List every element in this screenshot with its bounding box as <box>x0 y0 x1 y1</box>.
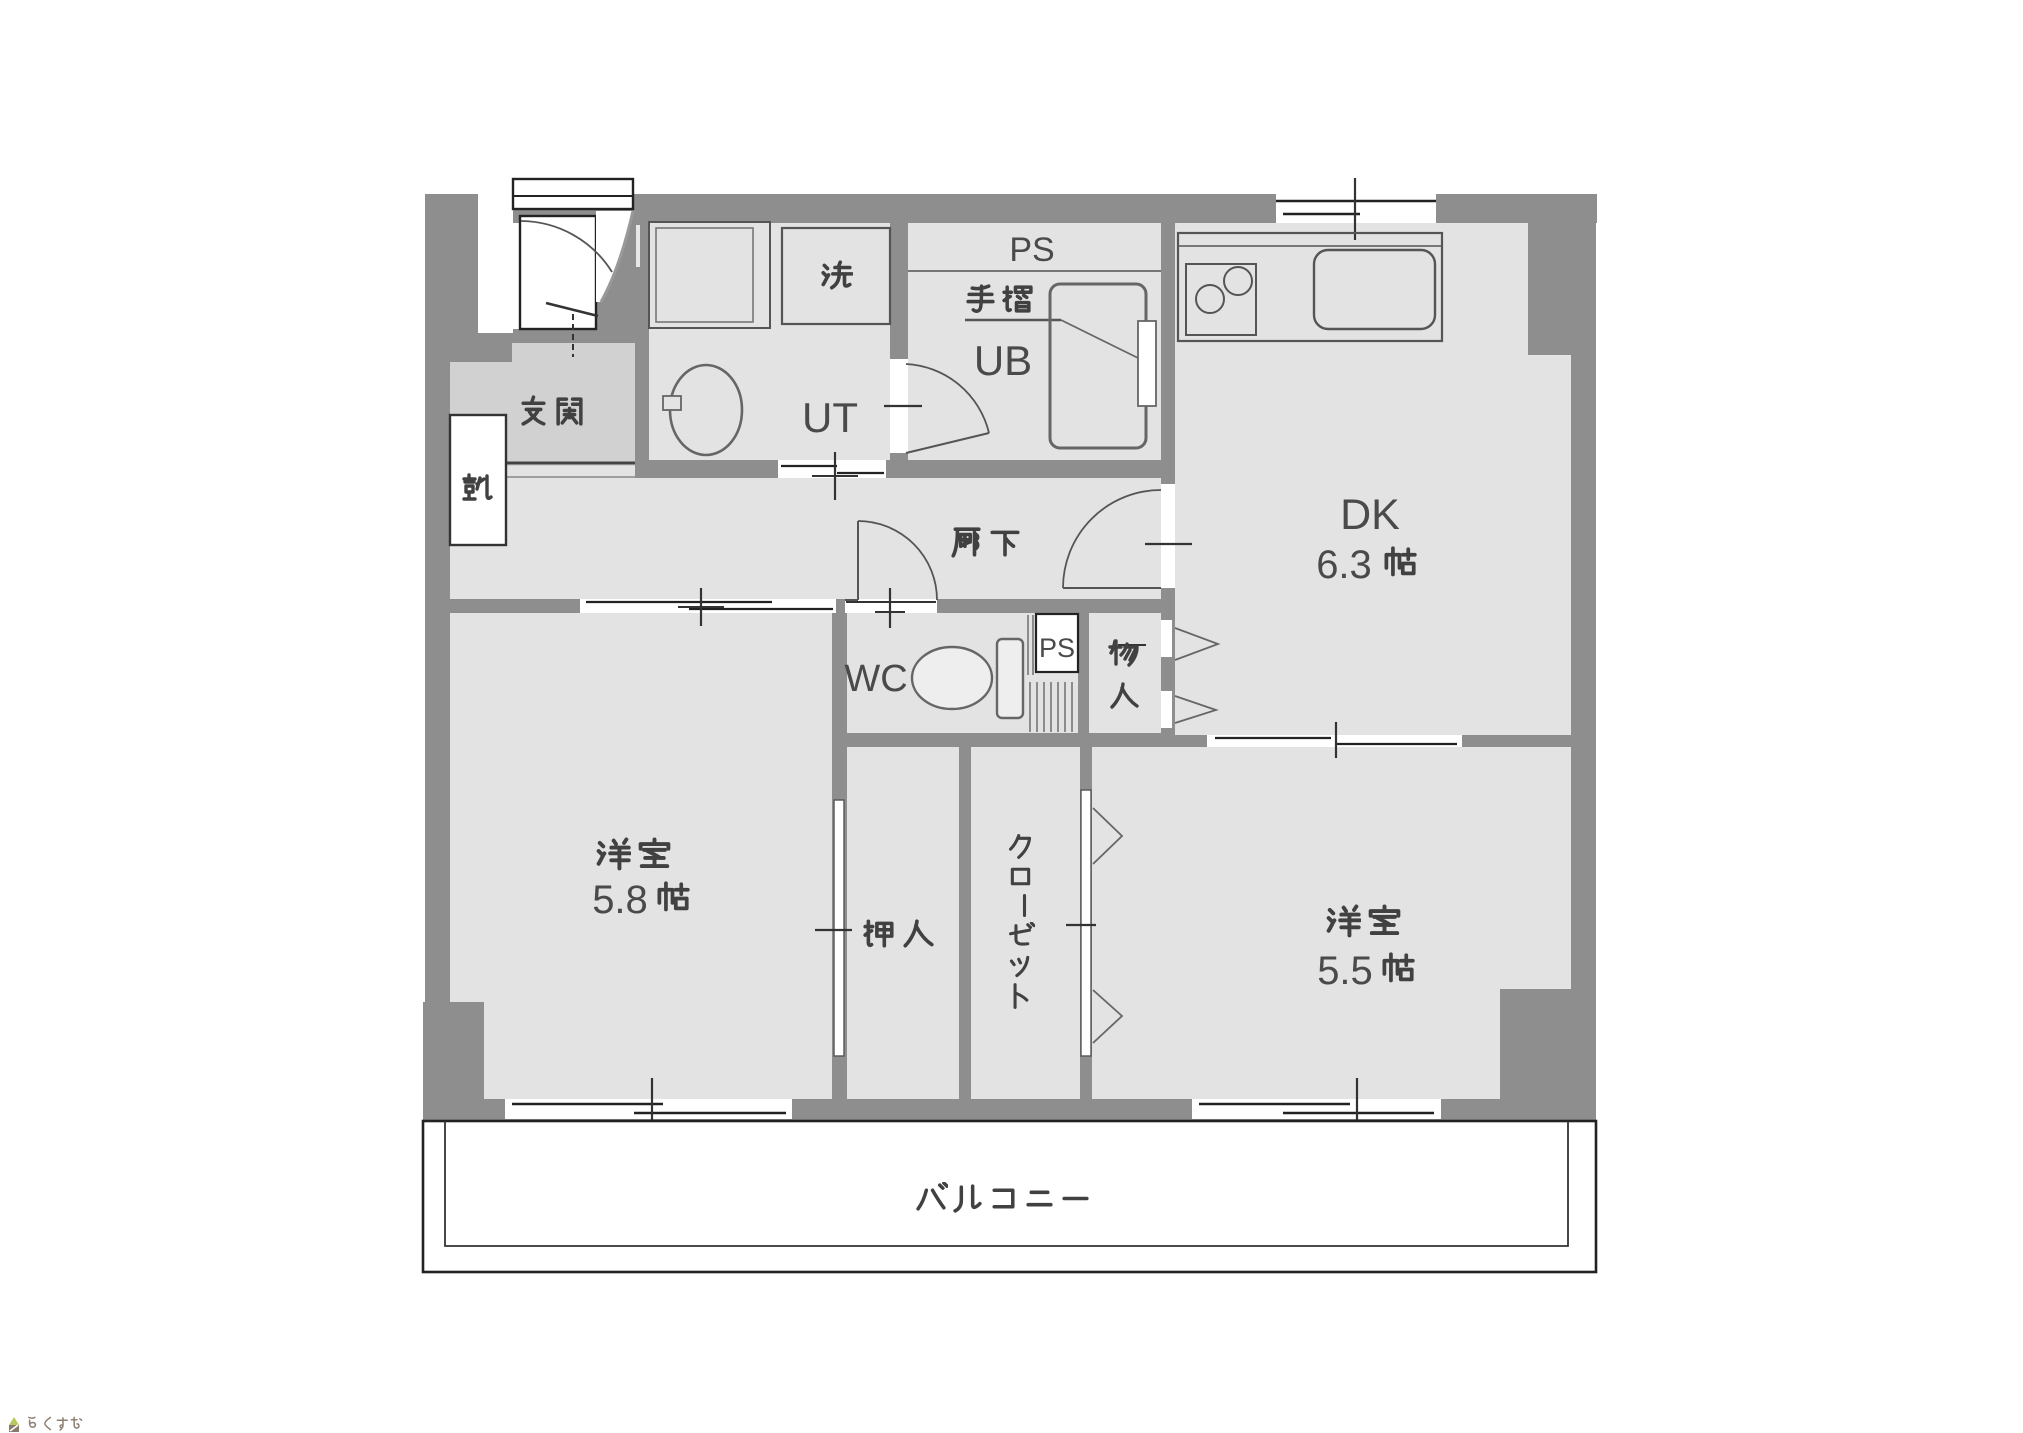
svg-text:DK: DK <box>1340 491 1400 539</box>
svg-text:6.3: 6.3 <box>1316 543 1372 587</box>
svg-text:5.5: 5.5 <box>1317 949 1373 993</box>
svg-text:PS: PS <box>1009 231 1054 269</box>
svg-text:PS: PS <box>1039 633 1075 663</box>
svg-text:UT: UT <box>802 394 858 441</box>
svg-text:5.8: 5.8 <box>592 878 648 922</box>
svg-text:WC: WC <box>844 658 907 700</box>
svg-text:UB: UB <box>974 337 1032 384</box>
